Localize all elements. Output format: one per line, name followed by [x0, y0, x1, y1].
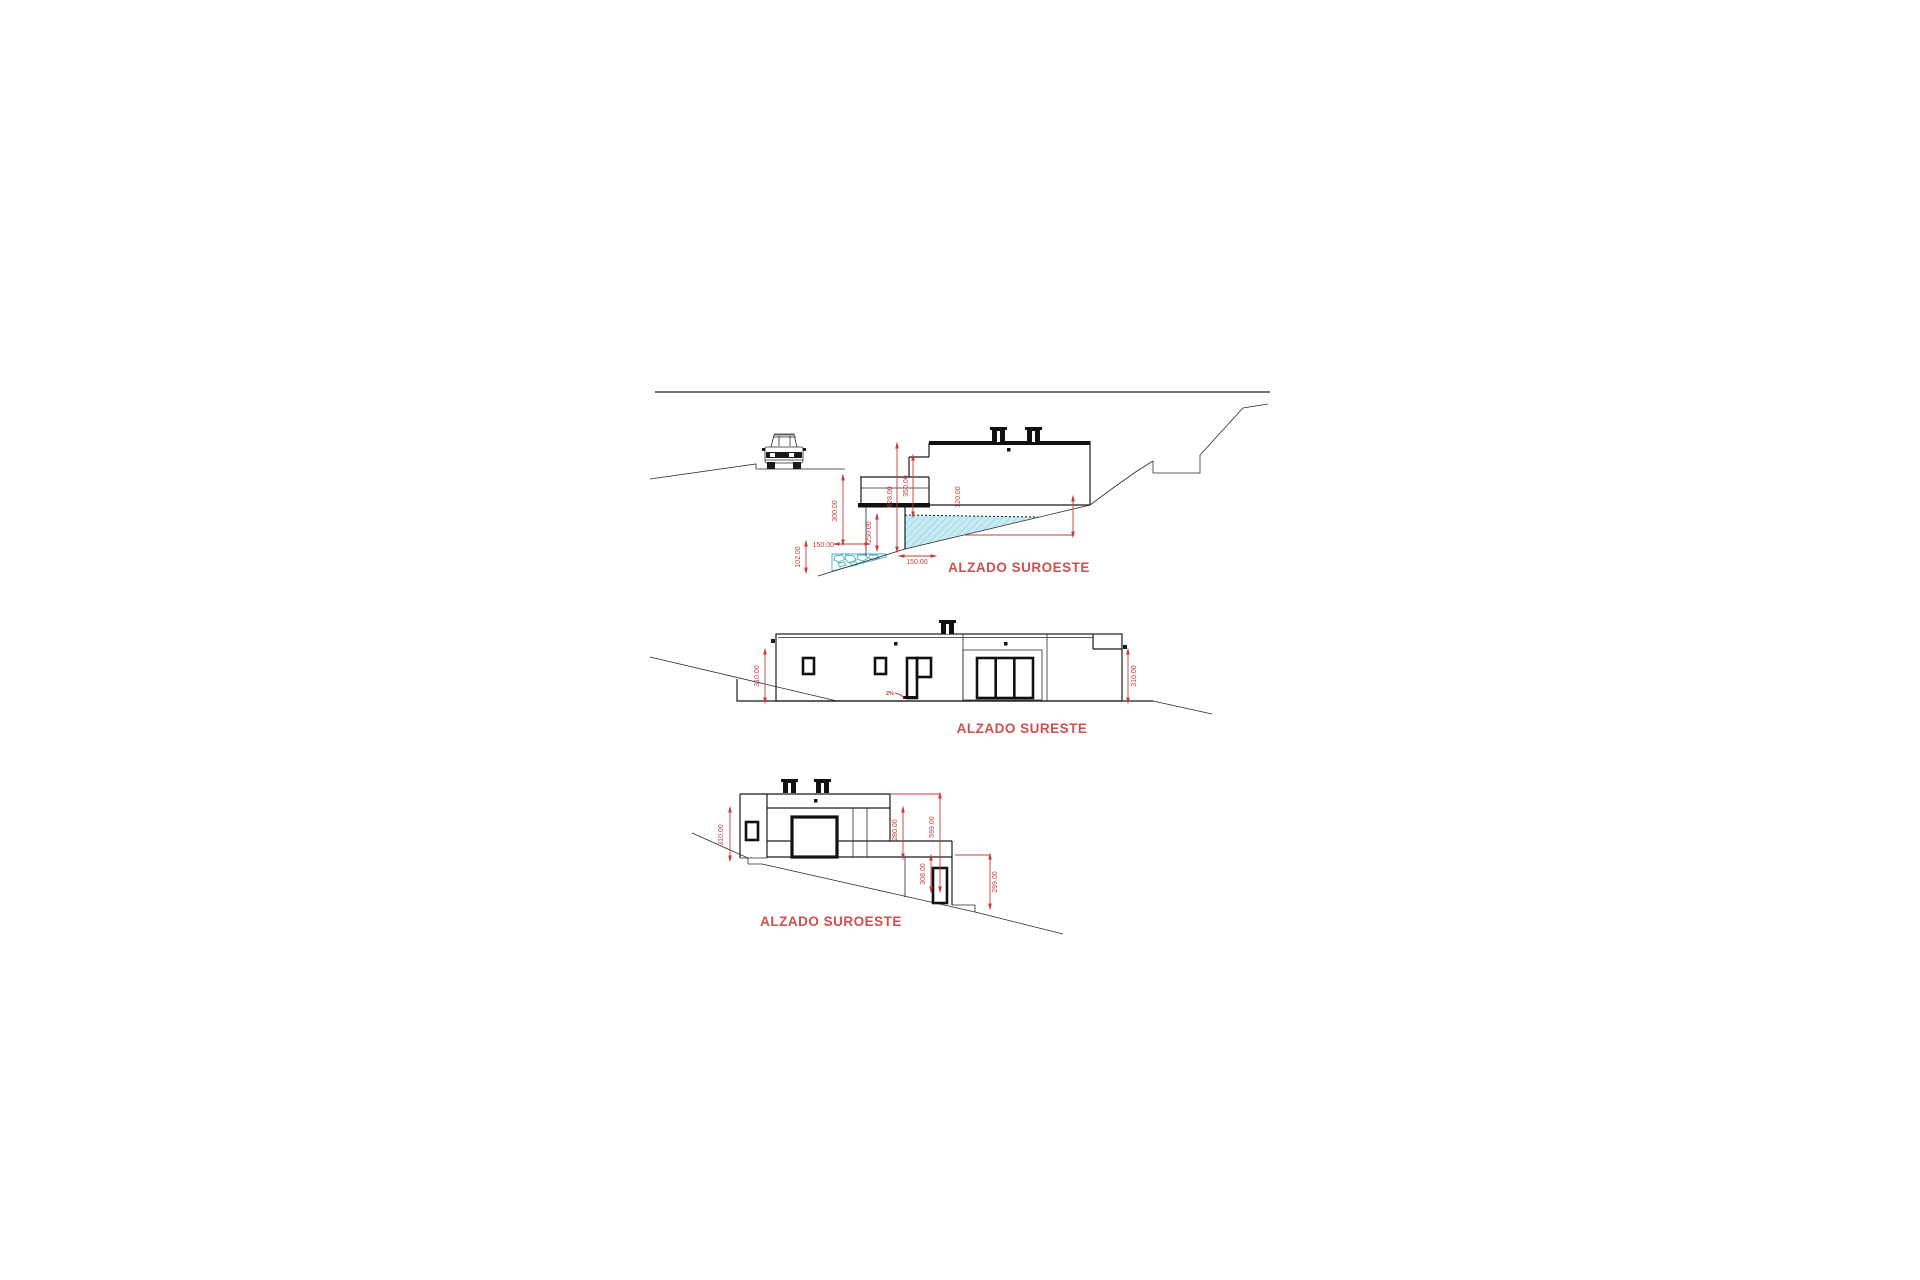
- dim-label-300: 300.00: [832, 500, 839, 522]
- stone-wall: [832, 554, 886, 571]
- elevation-bottom-suroeste: 310.00 280.00 599.00 308.00 299.00 ALZAD…: [692, 779, 1063, 934]
- architectural-drawing: 628.00 350.00 120.00 300.00 250.00 150.0…: [0, 0, 1920, 1280]
- title-top-elevation: ALZADO SUROESTE: [948, 560, 1090, 575]
- pool-section: [905, 507, 1038, 549]
- slope-note: 2%: [886, 691, 894, 697]
- dim-label-310-bottom: 310.00: [718, 824, 725, 846]
- dim-label-150-wall: 150.00: [813, 542, 835, 549]
- dim-label-102: 102.00: [795, 546, 802, 568]
- dim-label-280: 280.00: [892, 819, 899, 841]
- dimensions-bottom-elevation: 310.00 280.00 599.00 308.00 299.00: [718, 794, 999, 907]
- car-icon: [762, 434, 806, 469]
- building-middle-view: [771, 620, 1127, 701]
- dim-label-310-right: 310.00: [1131, 665, 1138, 687]
- terrain-left: [650, 464, 845, 479]
- dim-label-310-left: 310.00: [754, 665, 761, 687]
- dim-label-350: 350.00: [903, 475, 910, 497]
- dim-label-308: 308.00: [920, 863, 927, 885]
- dim-label-628: 628.00: [887, 486, 894, 508]
- drawing-sheet: 628.00 350.00 120.00 300.00 250.00 150.0…: [0, 0, 1920, 1280]
- dim-label-250: 250.00: [866, 521, 873, 543]
- title-bottom-elevation: ALZADO SUROESTE: [760, 914, 902, 929]
- dimensions-top-elevation: 628.00 350.00 120.00 300.00 250.00 150.0…: [795, 445, 1073, 571]
- dim-label-120: 120.00: [955, 486, 962, 508]
- dim-label-299: 299.00: [992, 871, 999, 893]
- dim-label-150-pool: 150.00: [906, 559, 928, 566]
- elevation-top-suroeste: 628.00 350.00 120.00 300.00 250.00 150.0…: [650, 404, 1268, 576]
- elevation-sureste: 310.00 310.00 2% ALZADO SURESTE: [650, 620, 1212, 736]
- dim-label-599: 599.00: [929, 816, 936, 838]
- title-middle-elevation: ALZADO SURESTE: [957, 721, 1088, 736]
- terrain-slope: [818, 404, 1268, 576]
